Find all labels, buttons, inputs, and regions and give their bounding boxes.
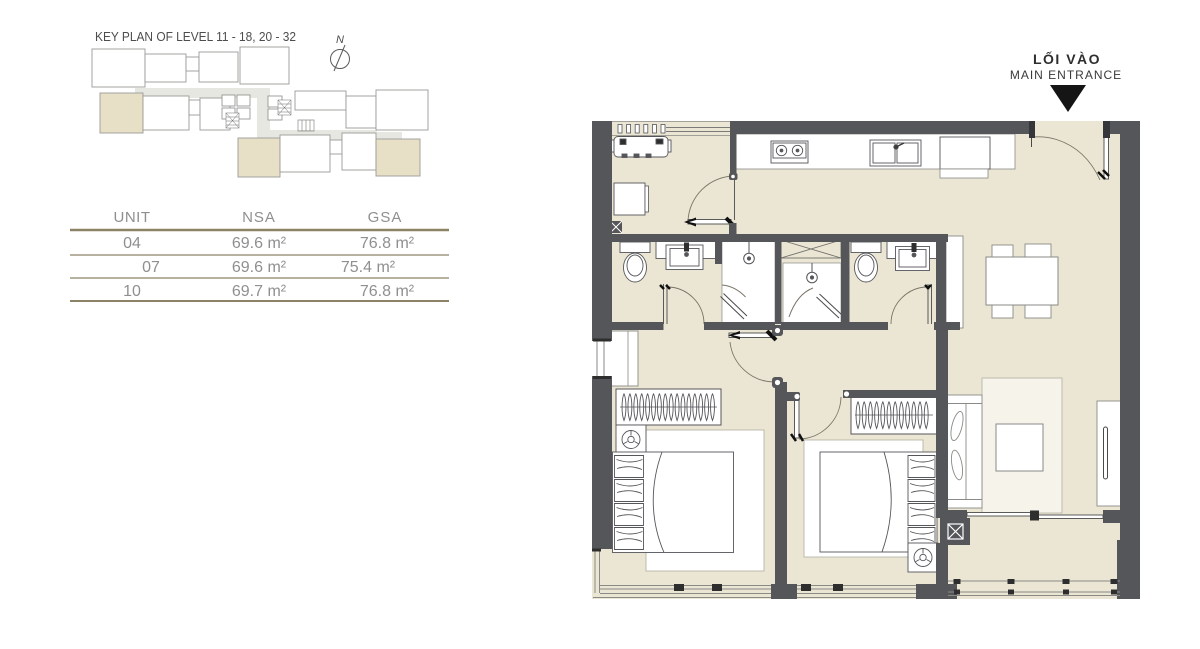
svg-text:07: 07 — [142, 259, 160, 276]
svg-text:76.8 m²: 76.8 m² — [360, 235, 415, 252]
svg-text:LỐI VÀO: LỐI VÀO — [1033, 50, 1101, 67]
svg-text:69.6 m²: 69.6 m² — [232, 235, 287, 252]
svg-text:69.6 m²: 69.6 m² — [232, 259, 287, 276]
svg-text:KEY PLAN OF LEVEL 11 - 18, 20: KEY PLAN OF LEVEL 11 - 18, 20 - 32 — [95, 30, 296, 44]
svg-text:UNIT: UNIT — [114, 209, 151, 226]
svg-text:04: 04 — [123, 235, 141, 252]
svg-text:75.4 m²: 75.4 m² — [341, 259, 396, 276]
svg-text:MAIN ENTRANCE: MAIN ENTRANCE — [1010, 68, 1122, 82]
svg-text:69.7 m²: 69.7 m² — [232, 283, 287, 300]
svg-text:GSA: GSA — [368, 209, 403, 226]
svg-text:10: 10 — [123, 283, 141, 300]
svg-text:76.8 m²: 76.8 m² — [360, 283, 415, 300]
svg-text:N: N — [336, 34, 344, 46]
svg-text:NSA: NSA — [242, 209, 276, 226]
